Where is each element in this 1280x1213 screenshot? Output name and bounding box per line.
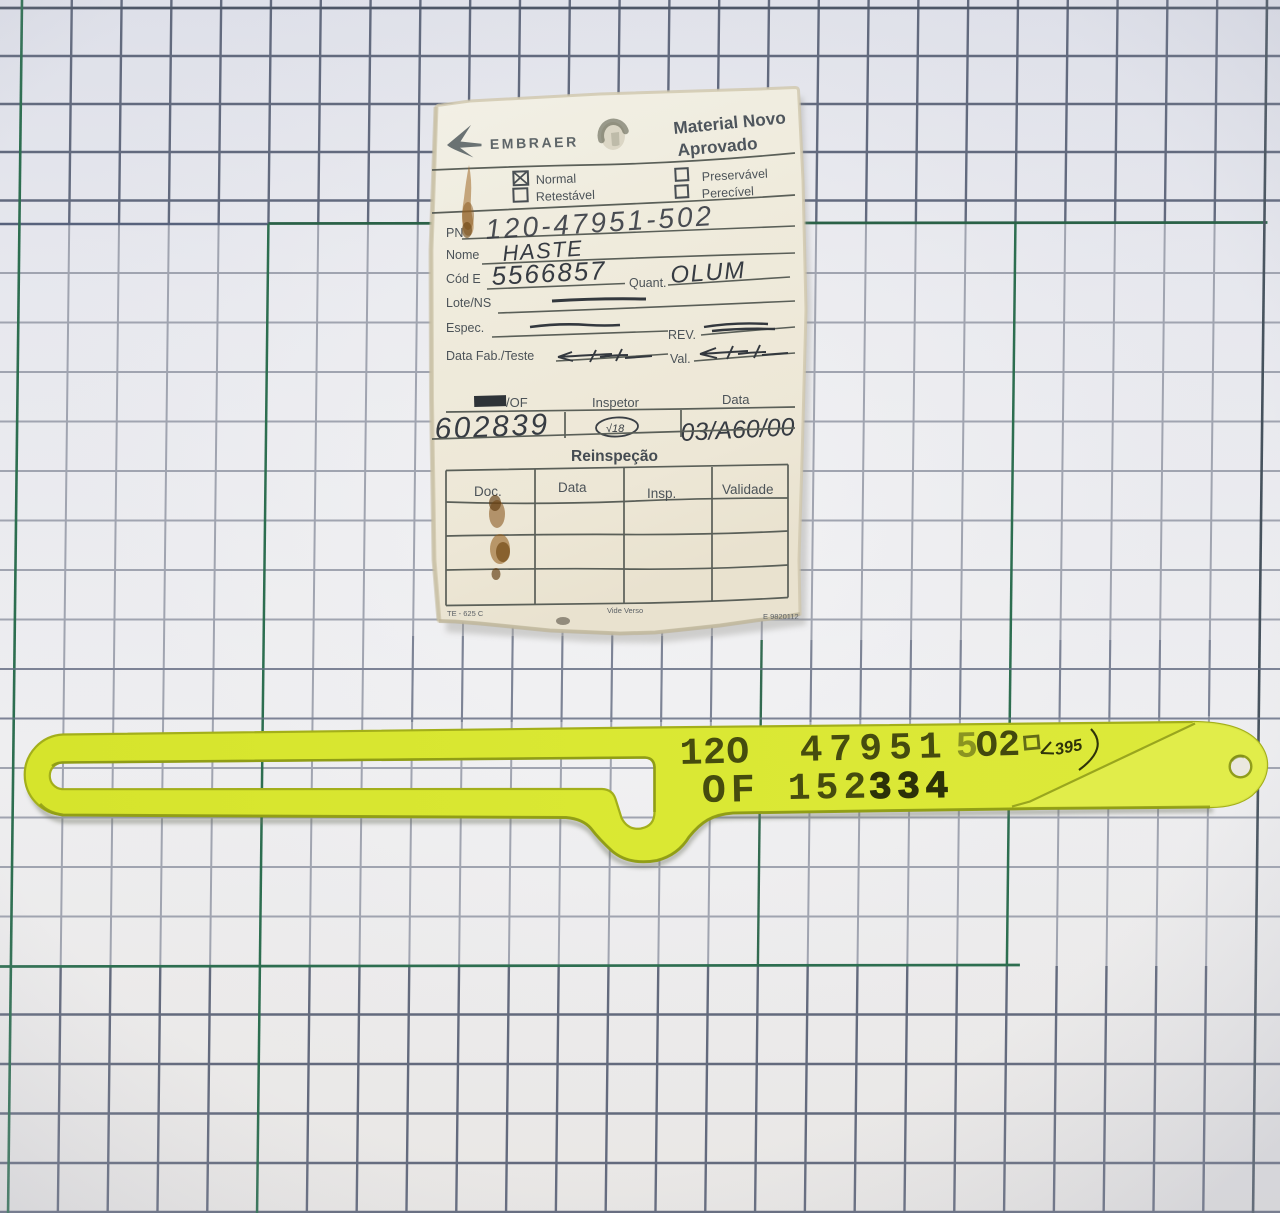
svg-text:Retestável: Retestável [536, 188, 596, 204]
svg-text:Cód E: Cód E [446, 272, 481, 286]
svg-text:OLUM: OLUM [670, 257, 747, 289]
svg-text:Espec.: Espec. [446, 321, 484, 335]
svg-text:602839: 602839 [434, 408, 550, 446]
svg-text:TE - 625 C: TE - 625 C [447, 609, 484, 618]
svg-text:E 9820112: E 9820112 [763, 612, 799, 621]
svg-text:5566857: 5566857 [491, 255, 608, 291]
svg-text:Data Fab./Teste: Data Fab./Teste [446, 349, 534, 363]
svg-text:Validade: Validade [722, 482, 774, 497]
svg-text:Insp.: Insp. [647, 486, 676, 501]
svg-text:Lote/NS: Lote/NS [446, 296, 491, 310]
svg-text:OF: OF [701, 769, 760, 815]
svg-text:Vide Verso: Vide Verso [607, 606, 643, 615]
svg-text:Nome: Nome [446, 248, 479, 262]
svg-text:Quant.: Quant. [629, 276, 667, 290]
svg-text:PN: PN [446, 226, 463, 240]
svg-text:Inspetor: Inspetor [592, 395, 640, 410]
svg-text:REV.: REV. [668, 328, 696, 342]
svg-text:152: 152 [787, 767, 871, 811]
svg-text:Data: Data [558, 480, 587, 495]
svg-text:Data: Data [722, 392, 750, 407]
svg-text:EMBRAER: EMBRAER [490, 134, 579, 152]
svg-text:Val.: Val. [670, 352, 691, 366]
svg-text:334: 334 [868, 766, 954, 810]
svg-text:Reinspeção: Reinspeção [571, 448, 658, 465]
svg-text:Normal: Normal [536, 172, 577, 187]
svg-text:/OF: /OF [506, 395, 528, 410]
svg-text:O2: O2 [975, 725, 1021, 768]
